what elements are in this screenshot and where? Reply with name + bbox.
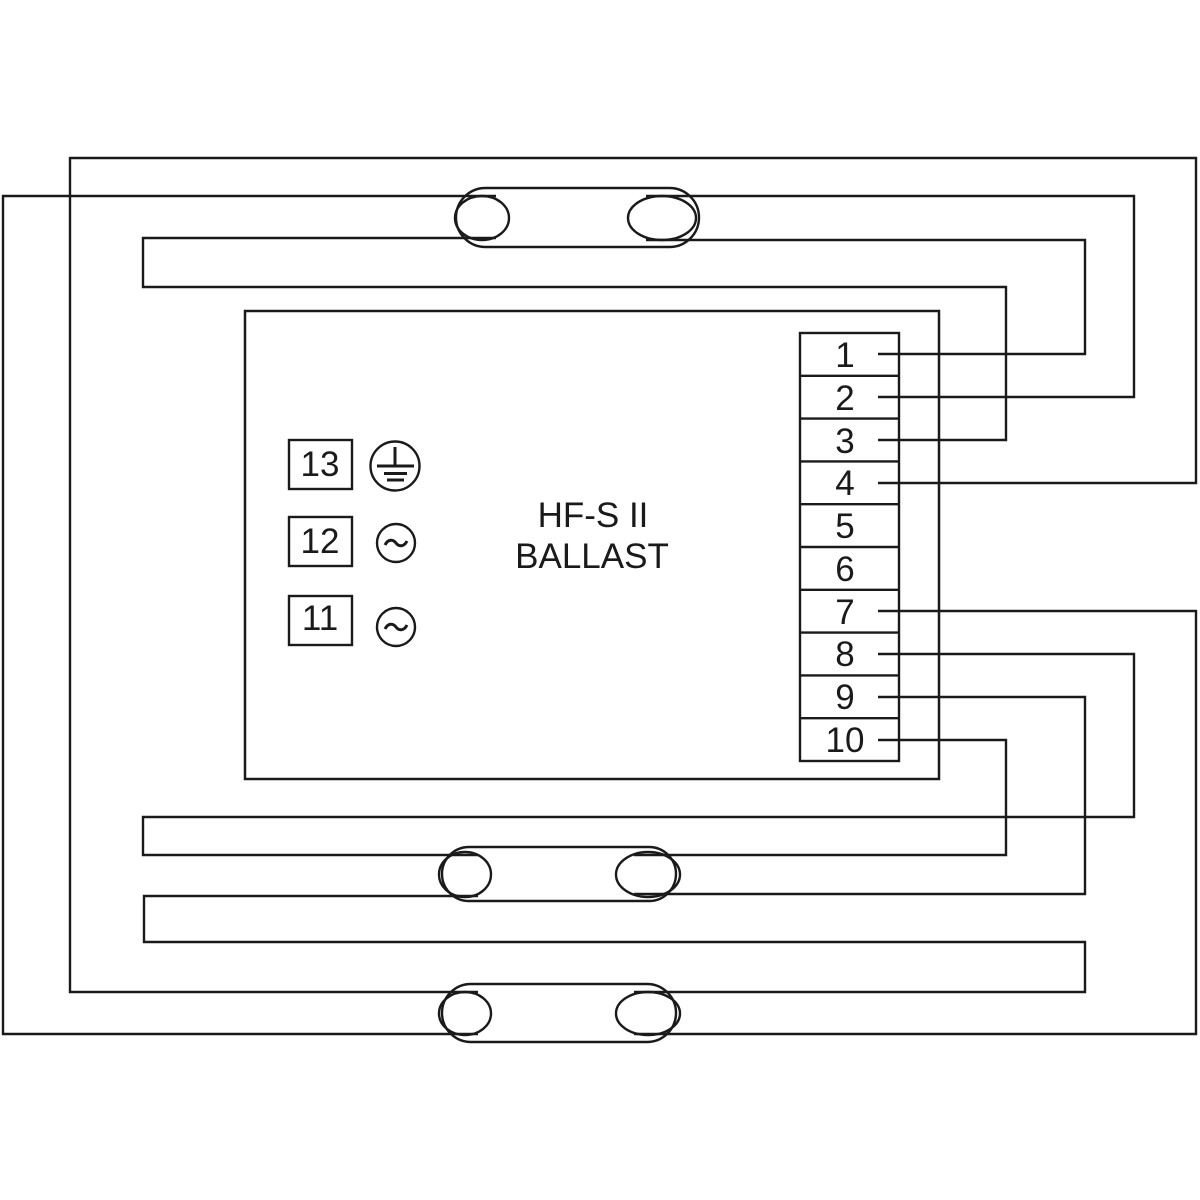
svg-text:HF-S II: HF-S II [538, 496, 649, 535]
svg-text:9: 9 [835, 678, 854, 717]
svg-text:7: 7 [835, 593, 854, 632]
svg-text:BALLAST: BALLAST [515, 537, 669, 576]
svg-text:3: 3 [835, 422, 854, 461]
svg-text:12: 12 [301, 522, 340, 561]
svg-text:13: 13 [301, 445, 340, 484]
svg-text:8: 8 [835, 635, 854, 674]
svg-text:4: 4 [835, 464, 854, 503]
svg-text:10: 10 [826, 721, 865, 760]
svg-text:5: 5 [835, 507, 854, 546]
svg-text:11: 11 [302, 599, 338, 638]
svg-text:6: 6 [835, 550, 854, 589]
svg-text:1: 1 [835, 336, 854, 375]
svg-text:2: 2 [835, 379, 854, 418]
